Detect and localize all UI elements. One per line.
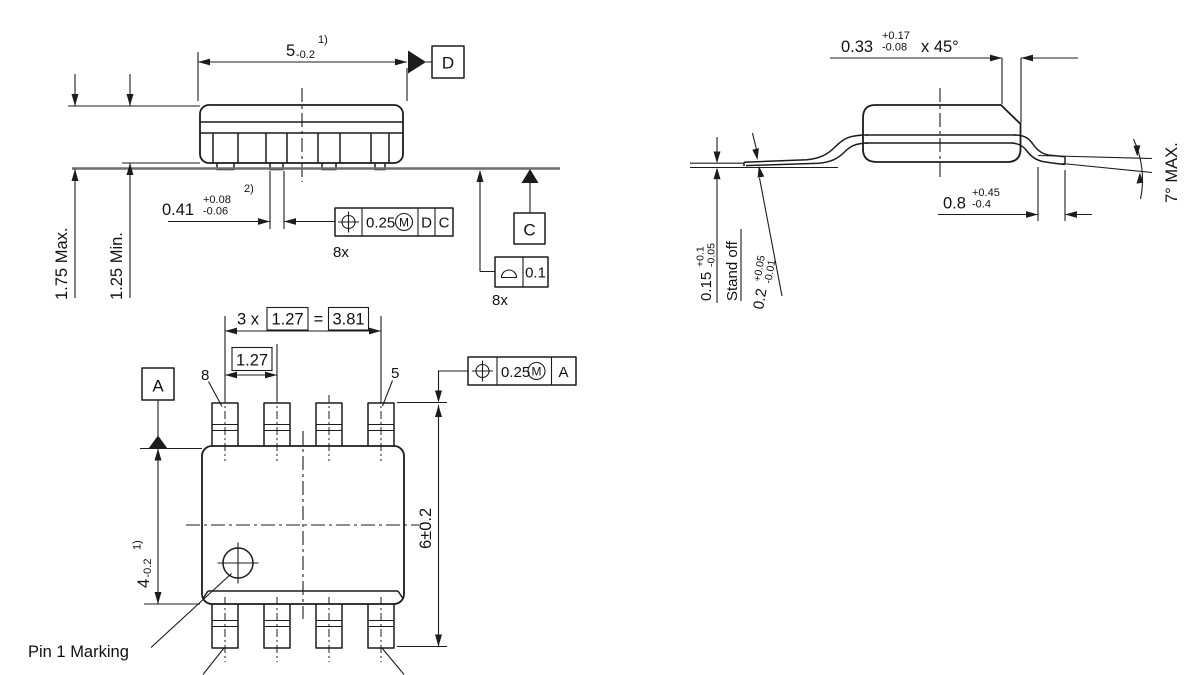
fcf-count: 8x <box>492 292 508 309</box>
datum-a-leader <box>140 400 202 449</box>
fcf-leader <box>480 171 495 272</box>
package-body-side <box>863 105 1021 162</box>
pin1-marking-callout: Pin 1 Marking <box>28 574 232 662</box>
pitch3-prefix: 3 x <box>237 311 260 329</box>
datum-c-label: C <box>523 221 535 240</box>
position-symbol-cross <box>338 212 359 233</box>
side-view: 0.33 +0.17 -0.08 x 45° 0.8 +0.45 -0.4 7°… <box>690 30 1181 311</box>
pin-number-labels: 8 5 <box>201 365 399 407</box>
thickness-value: 0.2 <box>750 287 770 310</box>
pitch3-equals: = <box>314 311 324 329</box>
chamfer-value: 0.33 <box>841 38 873 56</box>
pin1-marking-crosshair <box>218 543 259 584</box>
pitch3-total: 3.81 <box>332 311 364 329</box>
bottom-view: 3 x 1.27 = 3.81 1.27 8 5 <box>28 308 576 675</box>
dim-body-height-label: 1.25 Min. <box>108 232 126 300</box>
dim-length-value: 5 <box>286 42 295 60</box>
pin-leader-lines <box>203 648 404 675</box>
width-value: 4 <box>135 579 153 588</box>
lead-band-lines <box>866 135 1016 143</box>
fcf-datum-1: A <box>558 364 568 381</box>
foot-tol-plus: +0.45 <box>972 187 1000 199</box>
chamfer-tol-minus: -0.08 <box>882 42 907 54</box>
pin5-leader <box>383 381 393 407</box>
fcf-tolerance: 0.25 <box>366 215 395 232</box>
dim-lines <box>168 171 335 229</box>
standoff-label: Stand off <box>724 240 741 301</box>
width-note: 1) <box>132 540 144 550</box>
pins-bottom-bend-lines <box>212 621 394 627</box>
dim-pitch: 1.27 <box>225 344 277 400</box>
position-fcf-frame-bottom: 0.25 M A <box>397 357 576 403</box>
position-symbol-cross <box>472 361 493 382</box>
standoff-tol-minus: -0.05 <box>706 243 718 267</box>
lead-width-tol-plus: +0.08 <box>203 194 231 206</box>
lead-width-tol-minus: -0.06 <box>203 206 228 218</box>
dim-arrowheads <box>258 218 296 225</box>
lead-width-note: 2) <box>244 183 254 195</box>
dim-lead-width: 0.41 +0.08 -0.06 2) <box>162 171 335 229</box>
dim-arrowheads <box>752 148 764 178</box>
dim-foot-length: 0.8 +0.45 -0.4 <box>938 167 1092 221</box>
front-view: D 5 -0.2 1) 1.75 Max. 1.25 Min. 0.41 <box>53 34 560 309</box>
position-fcf-frame: 0.25 M D C 8x <box>333 208 453 261</box>
datum-d-triangle-icon <box>408 51 426 74</box>
dim-body-width: 4 -0.2 1) <box>132 449 201 605</box>
fcf-leader-arrowhead <box>477 170 484 182</box>
profile-symbol-icon <box>502 270 517 277</box>
dim-chamfer: 0.33 +0.17 -0.08 x 45° <box>830 30 1078 123</box>
dim-lead-angle: 7° MAX. <box>1038 139 1181 203</box>
fcf-tolerance: 0.1 <box>525 265 546 282</box>
dim-lines <box>68 74 200 298</box>
fcf-count: 8x <box>333 244 349 261</box>
pitch-value: 1.27 <box>236 352 268 370</box>
fcf-tolerance: 0.25 <box>501 364 530 381</box>
fcf-modifier: M <box>399 216 409 230</box>
pin1-marking-label: Pin 1 Marking <box>28 643 129 661</box>
dim-body-height: 1.25 Min. <box>108 74 200 300</box>
chamfer-suffix: x 45° <box>921 38 959 56</box>
drawing-canvas: D 5 -0.2 1) 1.75 Max. 1.25 Min. 0.41 <box>0 0 1200 675</box>
pin8-label: 8 <box>201 367 209 384</box>
datum-a-triangle-icon <box>149 436 168 449</box>
fcf-modifier: M <box>532 365 542 379</box>
pins-front <box>213 133 389 170</box>
fcf-leader <box>397 371 468 403</box>
pitch3-pitch: 1.27 <box>271 311 303 329</box>
lead-width-value: 0.41 <box>162 201 194 219</box>
left-lead <box>744 135 868 166</box>
chamfer-tol-plus: +0.17 <box>882 30 910 42</box>
dim-arrowheads <box>714 152 721 180</box>
profile-fcf-frame: 0.1 8x <box>477 170 549 309</box>
dim-lead-thickness: 0.2 +0.05 -0.01 <box>747 133 782 311</box>
standoff-value: 0.15 <box>698 272 715 301</box>
pin1-marker <box>218 543 259 584</box>
pin5-label: 5 <box>391 365 399 382</box>
datum-c-triangle-icon <box>522 169 539 183</box>
pins-top-bend-lines <box>212 425 394 431</box>
lead-angle-label: 7° MAX. <box>1163 142 1181 203</box>
width-tol: -0.2 <box>142 559 154 578</box>
dim-length-note: 1) <box>318 34 328 46</box>
datum-a: A <box>140 368 202 449</box>
dim-arrowheads <box>1026 211 1077 218</box>
foot-tol-minus: -0.4 <box>972 199 991 211</box>
dim-overall-height-label: 1.75 Max. <box>53 228 71 300</box>
dim-lines <box>830 58 1078 123</box>
dim-overall-height: 1.75 Max. <box>53 74 200 300</box>
datum-c: C <box>514 169 545 244</box>
package-outline-drawing: D 5 -0.2 1) 1.75 Max. 1.25 Min. 0.41 <box>0 0 1200 675</box>
datum-d-label: D <box>442 54 454 73</box>
fcf-leader-arrowhead <box>435 391 442 403</box>
datum-a-label: A <box>152 377 164 396</box>
dim-body-length: D 5 -0.2 1) <box>198 34 464 101</box>
fcf-datum-2: C <box>439 215 450 232</box>
dim-lines <box>122 74 200 298</box>
dim-length-tol: -0.2 <box>296 49 315 61</box>
foot-value: 0.8 <box>943 195 966 213</box>
fcf-datum-1: D <box>421 215 432 232</box>
dim-arrowheads <box>990 55 1033 62</box>
pin1-marking-leader <box>151 574 232 648</box>
span-value: 6±0.2 <box>417 508 435 549</box>
